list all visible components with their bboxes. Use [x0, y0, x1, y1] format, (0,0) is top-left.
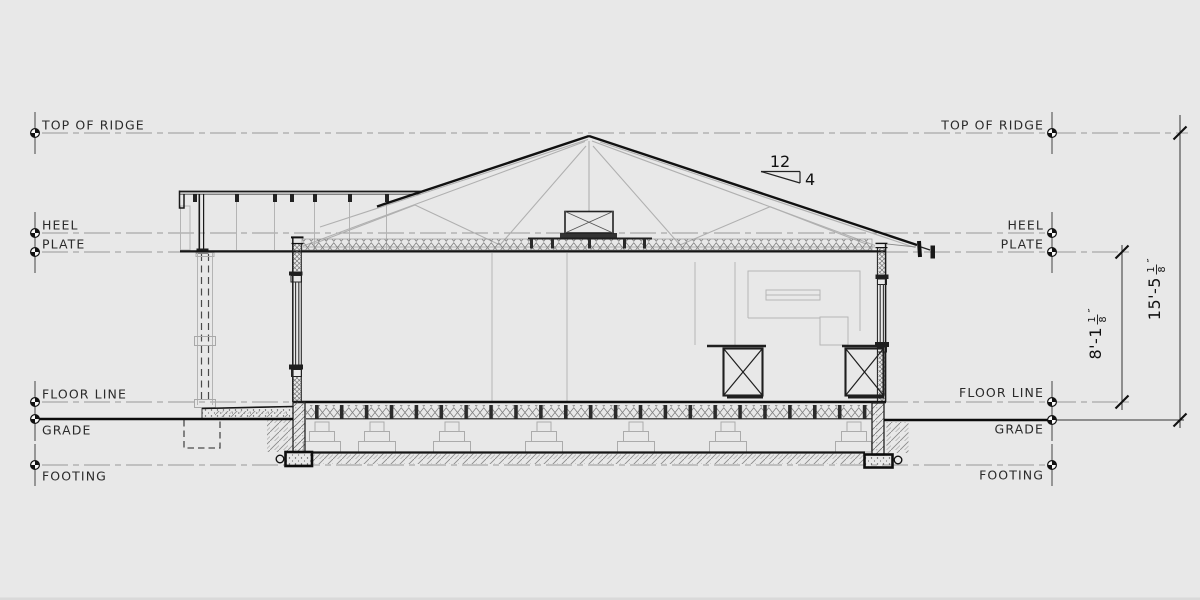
label-floor-line-left: FLOOR LINE: [42, 387, 127, 402]
stem-wall-right: [872, 403, 884, 455]
building-section-svg: 12 4 TOP OF RIDGE HEEL PLATE FLOOR LINE …: [0, 0, 1200, 600]
dim-frac-den: 8: [1157, 266, 1168, 272]
dim-text-plate-height: 8'-1: [1086, 327, 1105, 360]
paper-background: [0, 0, 1200, 600]
datum-marker-plate-left: [31, 248, 40, 257]
datum-marker-grade-left: [31, 415, 40, 424]
datum-marker-floor-left: [31, 398, 40, 407]
label-floor-line-right: FLOOR LINE: [959, 385, 1044, 400]
datum-marker-footing-left: [31, 461, 40, 470]
label-heel-right: HEEL: [1007, 218, 1044, 233]
fascia-right: [919, 241, 920, 257]
datum-marker-grade-right: [1048, 416, 1057, 425]
label-plate-right: PLATE: [1001, 237, 1044, 252]
floor-joists: [306, 405, 872, 419]
datum-marker-ridge-left: [31, 129, 40, 138]
dim-unit-mark: ″: [1086, 308, 1099, 312]
dim-frac-den: 8: [1098, 316, 1109, 322]
dim-unit-mark: ″: [1145, 258, 1158, 262]
label-top-of-ridge-right: TOP OF RIDGE: [940, 118, 1044, 133]
dim-frac-num: 1: [1146, 266, 1157, 272]
label-footing-right: FOOTING: [979, 468, 1044, 483]
backfill-right: [887, 422, 909, 453]
label-grade-left: GRADE: [42, 423, 91, 438]
dim-text-ridge-height: 15'-5: [1145, 277, 1164, 320]
pitch-rise-value: 4: [805, 170, 815, 189]
label-grade-right: GRADE: [995, 422, 1044, 437]
datum-marker-footing-right: [1048, 461, 1057, 470]
datum-marker-heel-left: [31, 229, 40, 238]
architectural-section-drawing: 12 4 TOP OF RIDGE HEEL PLATE FLOOR LINE …: [0, 0, 1200, 600]
label-heel-left: HEEL: [42, 218, 79, 233]
dim-frac-num: 1: [1087, 316, 1098, 322]
label-top-of-ridge-left: TOP OF RIDGE: [41, 118, 145, 133]
datum-marker-heel-right: [1048, 229, 1057, 238]
datum-marker-plate-right: [1048, 248, 1057, 257]
label-plate-left: PLATE: [42, 237, 85, 252]
label-footing-left: FOOTING: [42, 469, 107, 484]
datum-marker-floor-right: [1048, 398, 1057, 407]
stem-wall-left: [293, 402, 305, 453]
gutter-right: [931, 246, 936, 259]
left-window-sill: [289, 365, 303, 370]
porch-slab: [202, 407, 293, 419]
footing-left: [286, 452, 313, 466]
backfill-left: [267, 420, 293, 452]
pitch-run-value: 12: [770, 152, 790, 171]
datum-marker-ridge-right: [1048, 129, 1057, 138]
footing-right: [865, 455, 893, 468]
ceiling-insulation: [302, 239, 872, 250]
